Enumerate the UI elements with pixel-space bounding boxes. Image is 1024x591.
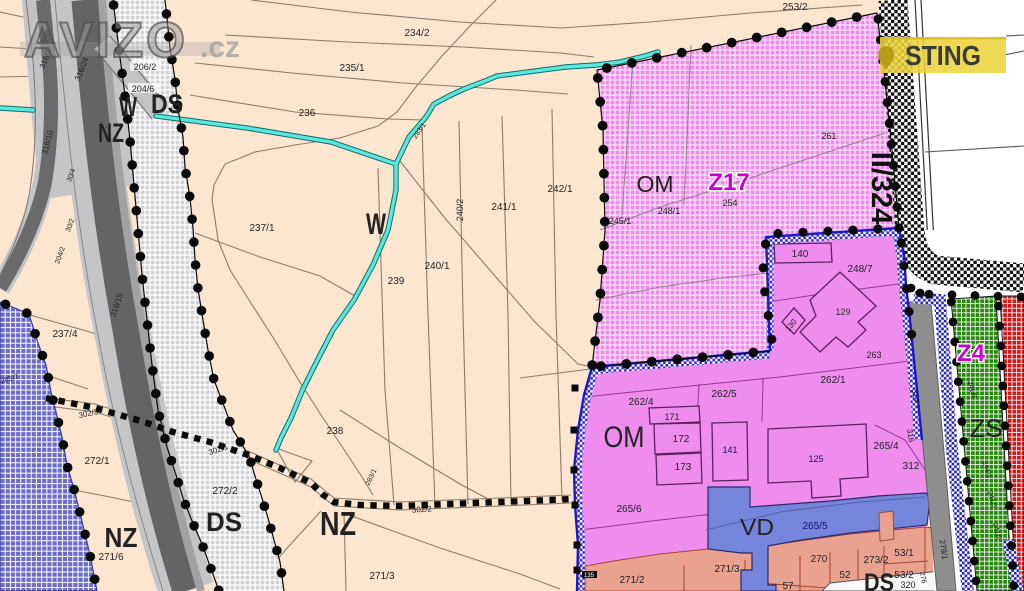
- svg-text:DS: DS: [864, 569, 894, 591]
- svg-text:Z17: Z17: [708, 169, 749, 196]
- svg-text:237/1: 237/1: [249, 223, 274, 234]
- svg-text:262/5: 262/5: [711, 389, 736, 400]
- svg-text:263: 263: [866, 350, 881, 360]
- svg-text:265/5: 265/5: [802, 521, 827, 532]
- svg-text:DS: DS: [151, 89, 183, 119]
- svg-text:253/2: 253/2: [782, 2, 807, 13]
- svg-text:OM: OM: [604, 421, 645, 454]
- svg-text:240/2: 240/2: [455, 199, 465, 222]
- svg-text:271/2: 271/2: [619, 575, 644, 586]
- svg-text:141: 141: [722, 445, 737, 455]
- svg-text:271/6: 271/6: [98, 552, 123, 563]
- svg-text:57: 57: [782, 581, 794, 591]
- svg-text:.cz: .cz: [200, 31, 240, 64]
- svg-text:320: 320: [900, 580, 915, 590]
- svg-text:STING: STING: [905, 40, 981, 71]
- svg-text:248/7: 248/7: [847, 264, 872, 275]
- svg-text:240/1: 240/1: [424, 261, 449, 272]
- svg-text:272/2: 272/2: [212, 486, 237, 497]
- svg-text:173: 173: [675, 462, 692, 473]
- svg-text:125: 125: [808, 454, 823, 464]
- svg-text:172: 172: [673, 434, 690, 445]
- svg-text:129: 129: [835, 307, 850, 317]
- svg-text:ZS: ZS: [970, 415, 1003, 443]
- svg-text:53/1: 53/1: [894, 548, 914, 559]
- svg-text:Z4: Z4: [957, 340, 986, 367]
- svg-text:NZ: NZ: [105, 522, 138, 553]
- svg-text:NZ: NZ: [98, 118, 124, 148]
- svg-text:271/3: 271/3: [369, 571, 394, 582]
- svg-text:302/2: 302/2: [412, 504, 433, 514]
- svg-text:II/324: II/324: [865, 152, 897, 225]
- svg-text:NZ: NZ: [320, 505, 356, 542]
- svg-text:135: 135: [584, 573, 595, 579]
- svg-text:140: 140: [792, 249, 809, 260]
- svg-text:248/1: 248/1: [658, 206, 681, 216]
- svg-text:312: 312: [903, 461, 920, 472]
- svg-text:261: 261: [821, 131, 836, 141]
- svg-text:W: W: [366, 208, 386, 241]
- svg-text:241/1: 241/1: [491, 202, 516, 213]
- svg-text:265/6: 265/6: [616, 504, 641, 515]
- svg-text:273/2: 273/2: [863, 555, 888, 566]
- svg-text:236: 236: [299, 108, 316, 119]
- svg-text:171: 171: [664, 412, 679, 422]
- svg-text:242/1: 242/1: [547, 184, 572, 195]
- svg-text:262/4: 262/4: [628, 397, 653, 408]
- svg-text:270: 270: [811, 554, 828, 565]
- svg-text:262/1: 262/1: [820, 375, 845, 386]
- svg-text:239: 239: [388, 276, 405, 287]
- svg-text:OM: OM: [636, 171, 673, 197]
- svg-text:235/1: 235/1: [339, 63, 364, 74]
- svg-text:265/4: 265/4: [873, 441, 898, 452]
- svg-text:204/6: 204/6: [132, 84, 155, 94]
- svg-text:234/2: 234/2: [404, 28, 429, 39]
- svg-text:272/1: 272/1: [84, 456, 109, 467]
- svg-text:238: 238: [327, 426, 344, 437]
- svg-text:237/4: 237/4: [52, 329, 77, 340]
- svg-text:52: 52: [839, 570, 851, 581]
- svg-text:254: 254: [722, 198, 737, 208]
- svg-text:DS: DS: [206, 507, 242, 537]
- svg-text:245/1: 245/1: [609, 216, 632, 226]
- svg-text:271/3: 271/3: [714, 564, 739, 575]
- svg-text:VD: VD: [740, 514, 774, 540]
